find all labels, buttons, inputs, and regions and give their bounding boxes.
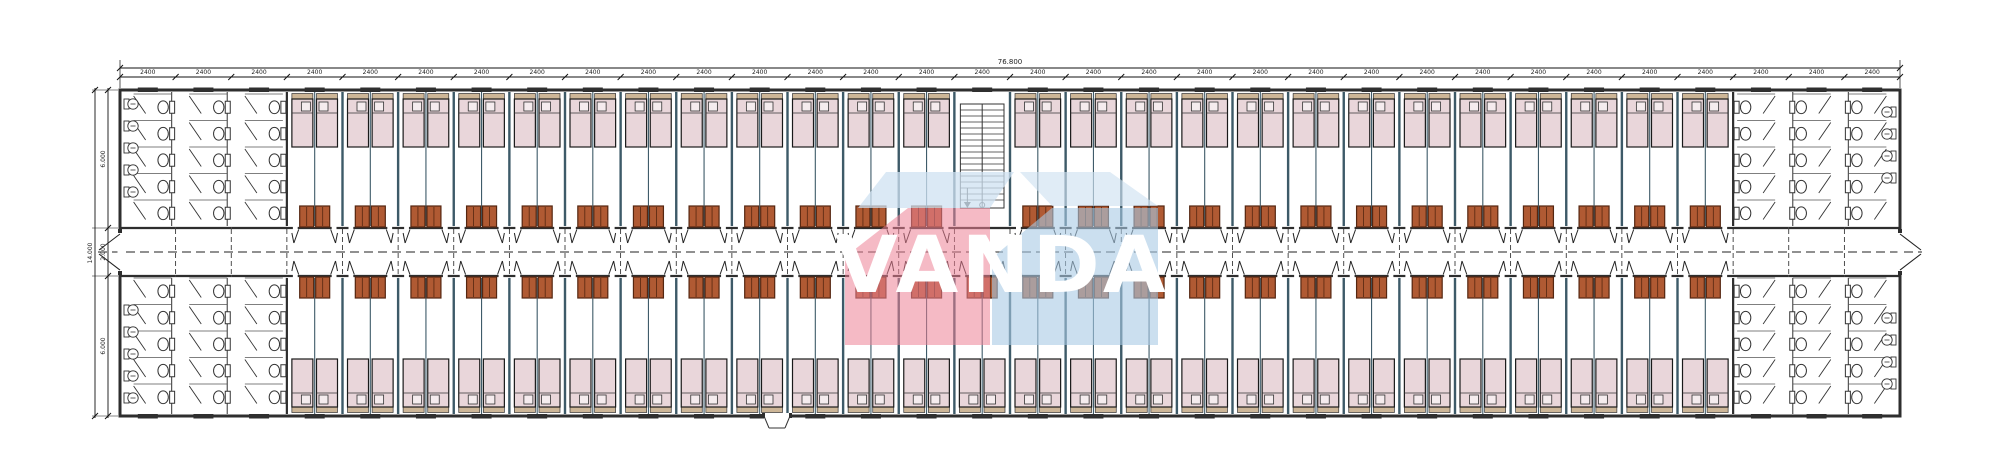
toilet-tank (1845, 338, 1850, 350)
pillow (468, 395, 477, 404)
toilet-tank (1790, 154, 1795, 166)
pillow (1080, 395, 1089, 404)
toilet-tank (1734, 365, 1739, 377)
pillow (691, 395, 700, 404)
pillow (969, 395, 978, 404)
pillow (802, 395, 811, 404)
pillow (468, 102, 477, 111)
window-icon (360, 414, 380, 419)
toilet-icon (1852, 311, 1862, 324)
toilet-tank (170, 312, 175, 324)
pillow (413, 102, 422, 111)
pillow (524, 102, 533, 111)
pillow (1598, 102, 1607, 111)
headboard-shelf (984, 407, 1005, 413)
window-icon (1528, 414, 1548, 419)
toilet-tank (281, 154, 286, 166)
toilet-icon (1852, 364, 1862, 377)
pillow (1191, 395, 1200, 404)
toilet-tank (1845, 207, 1850, 219)
pillow (913, 102, 922, 111)
pillow (319, 395, 328, 404)
headboard-shelf (1707, 407, 1728, 413)
headboard-shelf (650, 407, 671, 413)
pillow (653, 395, 662, 404)
module-dim-label: 2400 (1141, 69, 1156, 76)
toilet-tank (170, 338, 175, 350)
headboard-shelf (650, 94, 671, 100)
pillow (1042, 102, 1051, 111)
window-icon (305, 414, 325, 419)
toilet-icon (158, 207, 168, 220)
pillow (913, 395, 922, 404)
headboard-shelf (403, 94, 424, 100)
headboard-shelf (626, 407, 647, 413)
window-icon (583, 88, 603, 93)
toilet-tank (170, 365, 175, 377)
pillow (1414, 395, 1423, 404)
pillow (875, 102, 884, 111)
toilet-tank (225, 128, 230, 140)
toilet-icon (1740, 364, 1750, 377)
pillow (764, 395, 773, 404)
headboard-shelf (1040, 94, 1061, 100)
pillow (542, 395, 551, 404)
pillow (1098, 395, 1107, 404)
toilet-icon (214, 180, 224, 193)
pillow (708, 395, 717, 404)
door-jamb (789, 413, 792, 418)
toilet-icon (158, 338, 168, 351)
pillow (1581, 102, 1590, 111)
headboard-shelf (873, 407, 894, 413)
exit-door-swing (1900, 254, 1921, 270)
pillow (802, 102, 811, 111)
headboard-shelf (1571, 94, 1592, 100)
pillow (764, 102, 773, 111)
window-icon (1528, 88, 1548, 93)
toilet-tank (1845, 312, 1850, 324)
pillow (1654, 102, 1663, 111)
toilet-tank (1845, 285, 1850, 297)
headboard-shelf (348, 94, 369, 100)
pillow (1710, 102, 1719, 111)
toilet-icon (214, 285, 224, 298)
window-icon (1417, 414, 1437, 419)
pillow (1320, 102, 1329, 111)
headboard-shelf (1516, 94, 1537, 100)
toilet-icon (1796, 154, 1806, 167)
door-jamb (762, 413, 765, 418)
pillow (746, 395, 755, 404)
pillow (1376, 102, 1385, 111)
headboard-shelf (1071, 94, 1092, 100)
toilet-tank (225, 365, 230, 377)
pillow (1191, 102, 1200, 111)
toilet-icon (158, 154, 168, 167)
toilet-icon (269, 311, 279, 324)
toilet-icon (1852, 207, 1862, 220)
toilet-icon (214, 207, 224, 220)
headboard-shelf (1095, 407, 1116, 413)
headboard-shelf (570, 94, 591, 100)
pillow (1581, 395, 1590, 404)
toilet-icon (158, 285, 168, 298)
toilet-icon (269, 391, 279, 404)
module-dim-label: 2400 (251, 69, 266, 76)
pillow (1358, 102, 1367, 111)
headboard-shelf (403, 407, 424, 413)
headboard-shelf (1596, 94, 1617, 100)
toilet-tank (170, 181, 175, 193)
pillow (1432, 102, 1441, 111)
window-icon (750, 88, 770, 93)
toilet-tank (1845, 181, 1850, 193)
wall-opening (1898, 233, 1903, 271)
headboard-shelf (1126, 407, 1147, 413)
pillow (1692, 395, 1701, 404)
module-dim-label: 2400 (1586, 69, 1601, 76)
toilet-icon (214, 154, 224, 167)
pillow (1080, 102, 1089, 111)
pillow (1414, 102, 1423, 111)
pillow (486, 102, 495, 111)
toilet-icon (214, 127, 224, 140)
toilet-icon (269, 127, 279, 140)
window-icon (1195, 88, 1215, 93)
window-icon (972, 414, 992, 419)
pillow (1692, 102, 1701, 111)
module-dim-label: 2400 (1253, 69, 1268, 76)
left-total-dim-label: 14.000 (87, 242, 94, 263)
headboard-shelf (372, 94, 393, 100)
toilet-icon (1796, 180, 1806, 193)
headboard-shelf (372, 407, 393, 413)
pillow (635, 102, 644, 111)
headboard-shelf (1596, 407, 1617, 413)
window-icon (1473, 88, 1493, 93)
window-icon (1640, 414, 1660, 419)
toilet-tank (1845, 391, 1850, 403)
headboard-shelf (1540, 94, 1561, 100)
module-dim-label: 2400 (530, 69, 545, 76)
module-dim-label: 2400 (1030, 69, 1045, 76)
toilet-icon (1852, 127, 1862, 140)
toilet-tank (281, 181, 286, 193)
headboard-shelf (292, 94, 313, 100)
module-dim-label: 2400 (1364, 69, 1379, 76)
pillow (1265, 102, 1274, 111)
toilet-tank (1734, 181, 1739, 193)
toilet-icon (1796, 391, 1806, 404)
window-icon (917, 414, 937, 419)
pillow (301, 102, 310, 111)
pillow (1209, 395, 1218, 404)
headboard-shelf (348, 407, 369, 413)
window-icon (1751, 88, 1771, 93)
pillow (653, 102, 662, 111)
toilet-tank (1734, 101, 1739, 113)
headboard-shelf (292, 407, 313, 413)
door-jamb (1898, 271, 1902, 275)
module-dim-label: 2400 (585, 69, 600, 76)
pillow (1025, 395, 1034, 404)
window-icon (1306, 88, 1326, 93)
window-icon (1028, 88, 1048, 93)
toilet-icon (158, 180, 168, 193)
window-icon (249, 414, 269, 419)
headboard-shelf (817, 407, 838, 413)
toilet-tank (1734, 285, 1739, 297)
pillow (858, 395, 867, 404)
headboard-shelf (1015, 94, 1036, 100)
toilet-icon (1852, 285, 1862, 298)
wall-opening (118, 233, 123, 271)
module-dim-label: 2400 (196, 69, 211, 76)
pillow (987, 395, 996, 404)
headboard-shelf (737, 407, 758, 413)
window-icon (1584, 88, 1604, 93)
window-icon (1362, 414, 1382, 419)
headboard-shelf (317, 407, 338, 413)
pillow (319, 102, 328, 111)
headboard-shelf (873, 94, 894, 100)
toilet-icon (1740, 180, 1750, 193)
pillow (1042, 395, 1051, 404)
pillow (1136, 102, 1145, 111)
headboard-shelf (428, 94, 449, 100)
pillow (1543, 102, 1552, 111)
headboard-shelf (317, 94, 338, 100)
window-icon (805, 88, 825, 93)
window-icon (527, 88, 547, 93)
window-icon (1250, 88, 1270, 93)
module-dim-label: 2400 (752, 69, 767, 76)
window-icon (1306, 414, 1326, 419)
headboard-shelf (1460, 94, 1481, 100)
window-icon (527, 414, 547, 419)
exit-door-swing (1900, 234, 1921, 250)
headboard-shelf (904, 407, 925, 413)
toilet-tank (281, 338, 286, 350)
window-icon (472, 414, 492, 419)
toilet-tank (225, 285, 230, 297)
pillow (820, 102, 829, 111)
toilet-icon (269, 285, 279, 298)
headboard-shelf (1373, 94, 1394, 100)
headboard-shelf (1429, 407, 1450, 413)
toilet-icon (1740, 154, 1750, 167)
toilet-icon (269, 338, 279, 351)
toilet-icon (1740, 127, 1750, 140)
module-dim-label: 2400 (307, 69, 322, 76)
toilet-tank (225, 312, 230, 324)
toilet-icon (1852, 101, 1862, 114)
toilet-icon (214, 101, 224, 114)
window-icon (193, 88, 213, 93)
headboard-shelf (959, 407, 980, 413)
module-dim-label: 2400 (1698, 69, 1713, 76)
window-icon (1139, 88, 1159, 93)
window-icon (138, 414, 158, 419)
headboard-shelf (817, 94, 838, 100)
toilet-tank (225, 101, 230, 113)
pillow (1209, 102, 1218, 111)
headboard-shelf (1349, 407, 1370, 413)
toilet-tank (1790, 285, 1795, 297)
headboard-shelf (1151, 407, 1172, 413)
module-dim-label: 2400 (1642, 69, 1657, 76)
window-icon (917, 88, 937, 93)
pillow (357, 395, 366, 404)
pillow (1654, 395, 1663, 404)
window-icon (1417, 88, 1437, 93)
pillow (1153, 102, 1162, 111)
headboard-shelf (428, 407, 449, 413)
headboard-shelf (1095, 94, 1116, 100)
window-icon (1751, 414, 1771, 419)
pillow (1136, 395, 1145, 404)
window-icon (861, 414, 881, 419)
headboard-shelf (1683, 94, 1704, 100)
toilet-icon (158, 101, 168, 114)
module-dim-label: 2400 (808, 69, 823, 76)
window-icon (1807, 88, 1827, 93)
pillow (875, 395, 884, 404)
toilet-icon (1796, 127, 1806, 140)
toilet-icon (214, 338, 224, 351)
toilet-icon (1796, 207, 1806, 220)
headboard-shelf (1373, 407, 1394, 413)
headboard-shelf (1040, 407, 1061, 413)
pillow (1098, 102, 1107, 111)
toilet-tank (1734, 312, 1739, 324)
toilet-icon (158, 311, 168, 324)
window-icon (249, 88, 269, 93)
pillow (1247, 395, 1256, 404)
window-icon (1862, 414, 1882, 419)
toilet-icon (269, 180, 279, 193)
pillow (357, 102, 366, 111)
headboard-shelf (1404, 94, 1425, 100)
window-icon (360, 88, 380, 93)
toilet-icon (1740, 338, 1750, 351)
toilet-tank (225, 207, 230, 219)
toilet-icon (269, 364, 279, 377)
window-icon (138, 88, 158, 93)
toilet-icon (1852, 154, 1862, 167)
pillow (524, 395, 533, 404)
headboard-shelf (762, 94, 783, 100)
headboard-shelf (1627, 407, 1648, 413)
door-jamb (1898, 229, 1902, 233)
pillow (746, 102, 755, 111)
headboard-shelf (848, 94, 869, 100)
headboard-shelf (1404, 407, 1425, 413)
headboard-shelf (1182, 407, 1203, 413)
module-dim-label: 2400 (1753, 69, 1768, 76)
toilet-tank (1734, 391, 1739, 403)
module-dim-label: 2400 (1531, 69, 1546, 76)
module-dim-label: 2400 (1475, 69, 1490, 76)
headboard-shelf (1126, 94, 1147, 100)
toilet-tank (170, 101, 175, 113)
toilet-icon (1796, 311, 1806, 324)
headboard-shelf (1015, 407, 1036, 413)
overall-dim-label: 76.800 (998, 58, 1023, 66)
exit-door-swing (99, 234, 120, 250)
module-dim-label: 2400 (641, 69, 656, 76)
window-icon (1250, 414, 1270, 419)
module-dim-label: 2400 (1086, 69, 1101, 76)
window-icon (972, 88, 992, 93)
toilet-tank (281, 128, 286, 140)
window-icon (861, 88, 881, 93)
module-dim-label: 2400 (1308, 69, 1323, 76)
pillow (931, 102, 940, 111)
window-icon (416, 88, 436, 93)
headboard-shelf (1652, 94, 1673, 100)
toilet-tank (1734, 207, 1739, 219)
headboard-shelf (1318, 407, 1339, 413)
toilet-tank (1790, 128, 1795, 140)
pillow (1543, 395, 1552, 404)
headboard-shelf (459, 407, 480, 413)
exit-door-swing (99, 254, 120, 270)
headboard-shelf (459, 94, 480, 100)
toilet-icon (1852, 180, 1862, 193)
module-dim-label: 2400 (140, 69, 155, 76)
window-icon (1473, 414, 1493, 419)
pillow (1636, 102, 1645, 111)
headboard-shelf (626, 94, 647, 100)
window-icon (1139, 414, 1159, 419)
window-icon (638, 88, 658, 93)
toilet-icon (1796, 285, 1806, 298)
pillow (635, 395, 644, 404)
window-icon (1362, 88, 1382, 93)
pillow (486, 395, 495, 404)
headboard-shelf (1571, 407, 1592, 413)
window-icon (416, 414, 436, 419)
toilet-icon (1740, 101, 1750, 114)
window-icon (193, 414, 213, 419)
pillow (1710, 395, 1719, 404)
toilet-tank (170, 128, 175, 140)
toilet-icon (1796, 338, 1806, 351)
pillow (597, 102, 606, 111)
pillow (1265, 395, 1274, 404)
wall-opening (764, 413, 790, 419)
window-icon (583, 414, 603, 419)
window-icon (1640, 88, 1660, 93)
pillow (413, 395, 422, 404)
headboard-shelf (595, 94, 616, 100)
toilet-tank (281, 285, 286, 297)
toilet-tank (170, 285, 175, 297)
left-segment-dim-label: 6.000 (100, 337, 107, 354)
toilet-tank (1845, 101, 1850, 113)
headboard-shelf (1460, 407, 1481, 413)
window-icon (1807, 414, 1827, 419)
pillow (1525, 102, 1534, 111)
headboard-shelf (793, 94, 814, 100)
toilet-icon (214, 391, 224, 404)
headboard-shelf (1485, 94, 1506, 100)
headboard-shelf (706, 407, 727, 413)
pillow (931, 395, 940, 404)
headboard-shelf (1540, 407, 1561, 413)
